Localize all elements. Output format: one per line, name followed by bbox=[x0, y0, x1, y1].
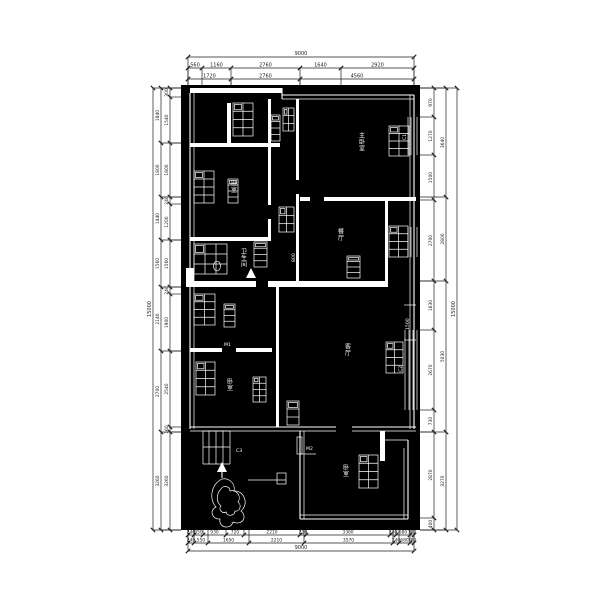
dim-label: 160 bbox=[164, 425, 170, 434]
dim-label: 1560 bbox=[164, 258, 170, 269]
dim-overall-left: 15000 bbox=[147, 301, 153, 317]
dim-label: 730 bbox=[428, 417, 434, 426]
dim-label: 2210 bbox=[266, 530, 277, 536]
dim-label: 400 bbox=[428, 520, 434, 529]
dim-label: 1440 bbox=[155, 213, 161, 224]
dim-label: 2760 bbox=[259, 74, 272, 80]
dim-label: 210 bbox=[299, 530, 308, 536]
dim-label: 2760 bbox=[259, 63, 272, 69]
window-tag-c3: C3 bbox=[236, 448, 242, 454]
dim-label: 1800 bbox=[164, 164, 170, 175]
room-label-bathroom: 卫生间 bbox=[240, 248, 247, 268]
dim-label: 970 bbox=[428, 98, 434, 107]
dim-label: 2800 bbox=[440, 233, 446, 244]
dim-label: 3360 bbox=[342, 530, 353, 536]
dim-label: 3260 bbox=[164, 475, 170, 486]
dim-label: 1650 bbox=[223, 538, 234, 544]
dim-label: 3270 bbox=[440, 475, 446, 486]
dim-label: 680 bbox=[399, 530, 408, 536]
dim-label: 560 bbox=[190, 63, 200, 69]
dim-label: 1630 bbox=[428, 300, 434, 311]
dim-label: 240 bbox=[164, 286, 170, 295]
dim-label: 2870 bbox=[428, 469, 434, 480]
dim-label: 3260 bbox=[155, 475, 161, 486]
dim-label: 1540 bbox=[164, 114, 170, 125]
dim-overall-right: 15000 bbox=[451, 301, 457, 317]
dim-label: 240 bbox=[164, 196, 170, 205]
dim-label: 550 bbox=[197, 538, 206, 544]
dim-label: 180 bbox=[408, 530, 417, 536]
dim-label: 3570 bbox=[343, 538, 354, 544]
dim-overall-bottom: 9000 bbox=[295, 545, 308, 551]
inner-dim-door: 800 bbox=[291, 253, 297, 262]
dim-label: 1640 bbox=[314, 63, 327, 69]
room-label-bedroom-3: 卧室 bbox=[226, 377, 233, 391]
dim-label: 3640 bbox=[440, 137, 446, 148]
floor-plan-drawing: 主卧室 卧室 餐厅 卫生间 客厅 卧室 卧室 M1 M2 C1 C2 C3 15… bbox=[0, 0, 600, 600]
dim-label: 240 bbox=[392, 538, 401, 544]
dim-label: 2670 bbox=[428, 364, 434, 375]
door-tag-m1: M1 bbox=[224, 342, 231, 348]
dim-label: 180 bbox=[408, 538, 417, 544]
inner-dim-window: 1500 bbox=[405, 318, 411, 330]
dim-label: 2700 bbox=[155, 386, 161, 397]
dim-label: 1200 bbox=[164, 216, 170, 227]
dim-label: 1720 bbox=[203, 74, 216, 80]
dim-label: 2700 bbox=[428, 235, 434, 246]
dim-label: 1160 bbox=[210, 63, 223, 69]
dim-label: 2540 bbox=[164, 383, 170, 394]
window-tag-c1: C1 bbox=[402, 134, 408, 140]
room-label-dining: 餐厅 bbox=[337, 227, 344, 241]
dim-label: 1800 bbox=[155, 164, 161, 175]
dim-label: 930 bbox=[210, 530, 219, 536]
door-tag-m2: M2 bbox=[306, 446, 313, 452]
dim-label: 350 bbox=[194, 530, 203, 536]
dim-label: 1840 bbox=[155, 110, 161, 121]
dim-label: 300 bbox=[164, 88, 170, 97]
dim-label: 2140 bbox=[155, 313, 161, 324]
dim-label: 1270 bbox=[428, 130, 434, 141]
dim-label: 1500 bbox=[428, 172, 434, 183]
floor-plan-canvas: 主卧室 卧室 餐厅 卫生间 客厅 卧室 卧室 M1 M2 C1 C2 C3 15… bbox=[0, 0, 600, 600]
dim-label: 2210 bbox=[271, 538, 282, 544]
dim-label: 5030 bbox=[440, 351, 446, 362]
dim-label: 720 bbox=[231, 530, 240, 536]
room-label-living: 客厅 bbox=[344, 342, 351, 356]
dim-label: 4560 bbox=[351, 74, 364, 80]
dim-label: 2920 bbox=[371, 63, 384, 69]
dim-overall-top: 9000 bbox=[295, 51, 308, 57]
dim-label: 1560 bbox=[155, 258, 161, 269]
room-label-master-bedroom: 主卧室 bbox=[358, 131, 365, 151]
room-label-bedroom-4: 卧室 bbox=[342, 463, 349, 477]
dim-label: 1900 bbox=[164, 317, 170, 328]
